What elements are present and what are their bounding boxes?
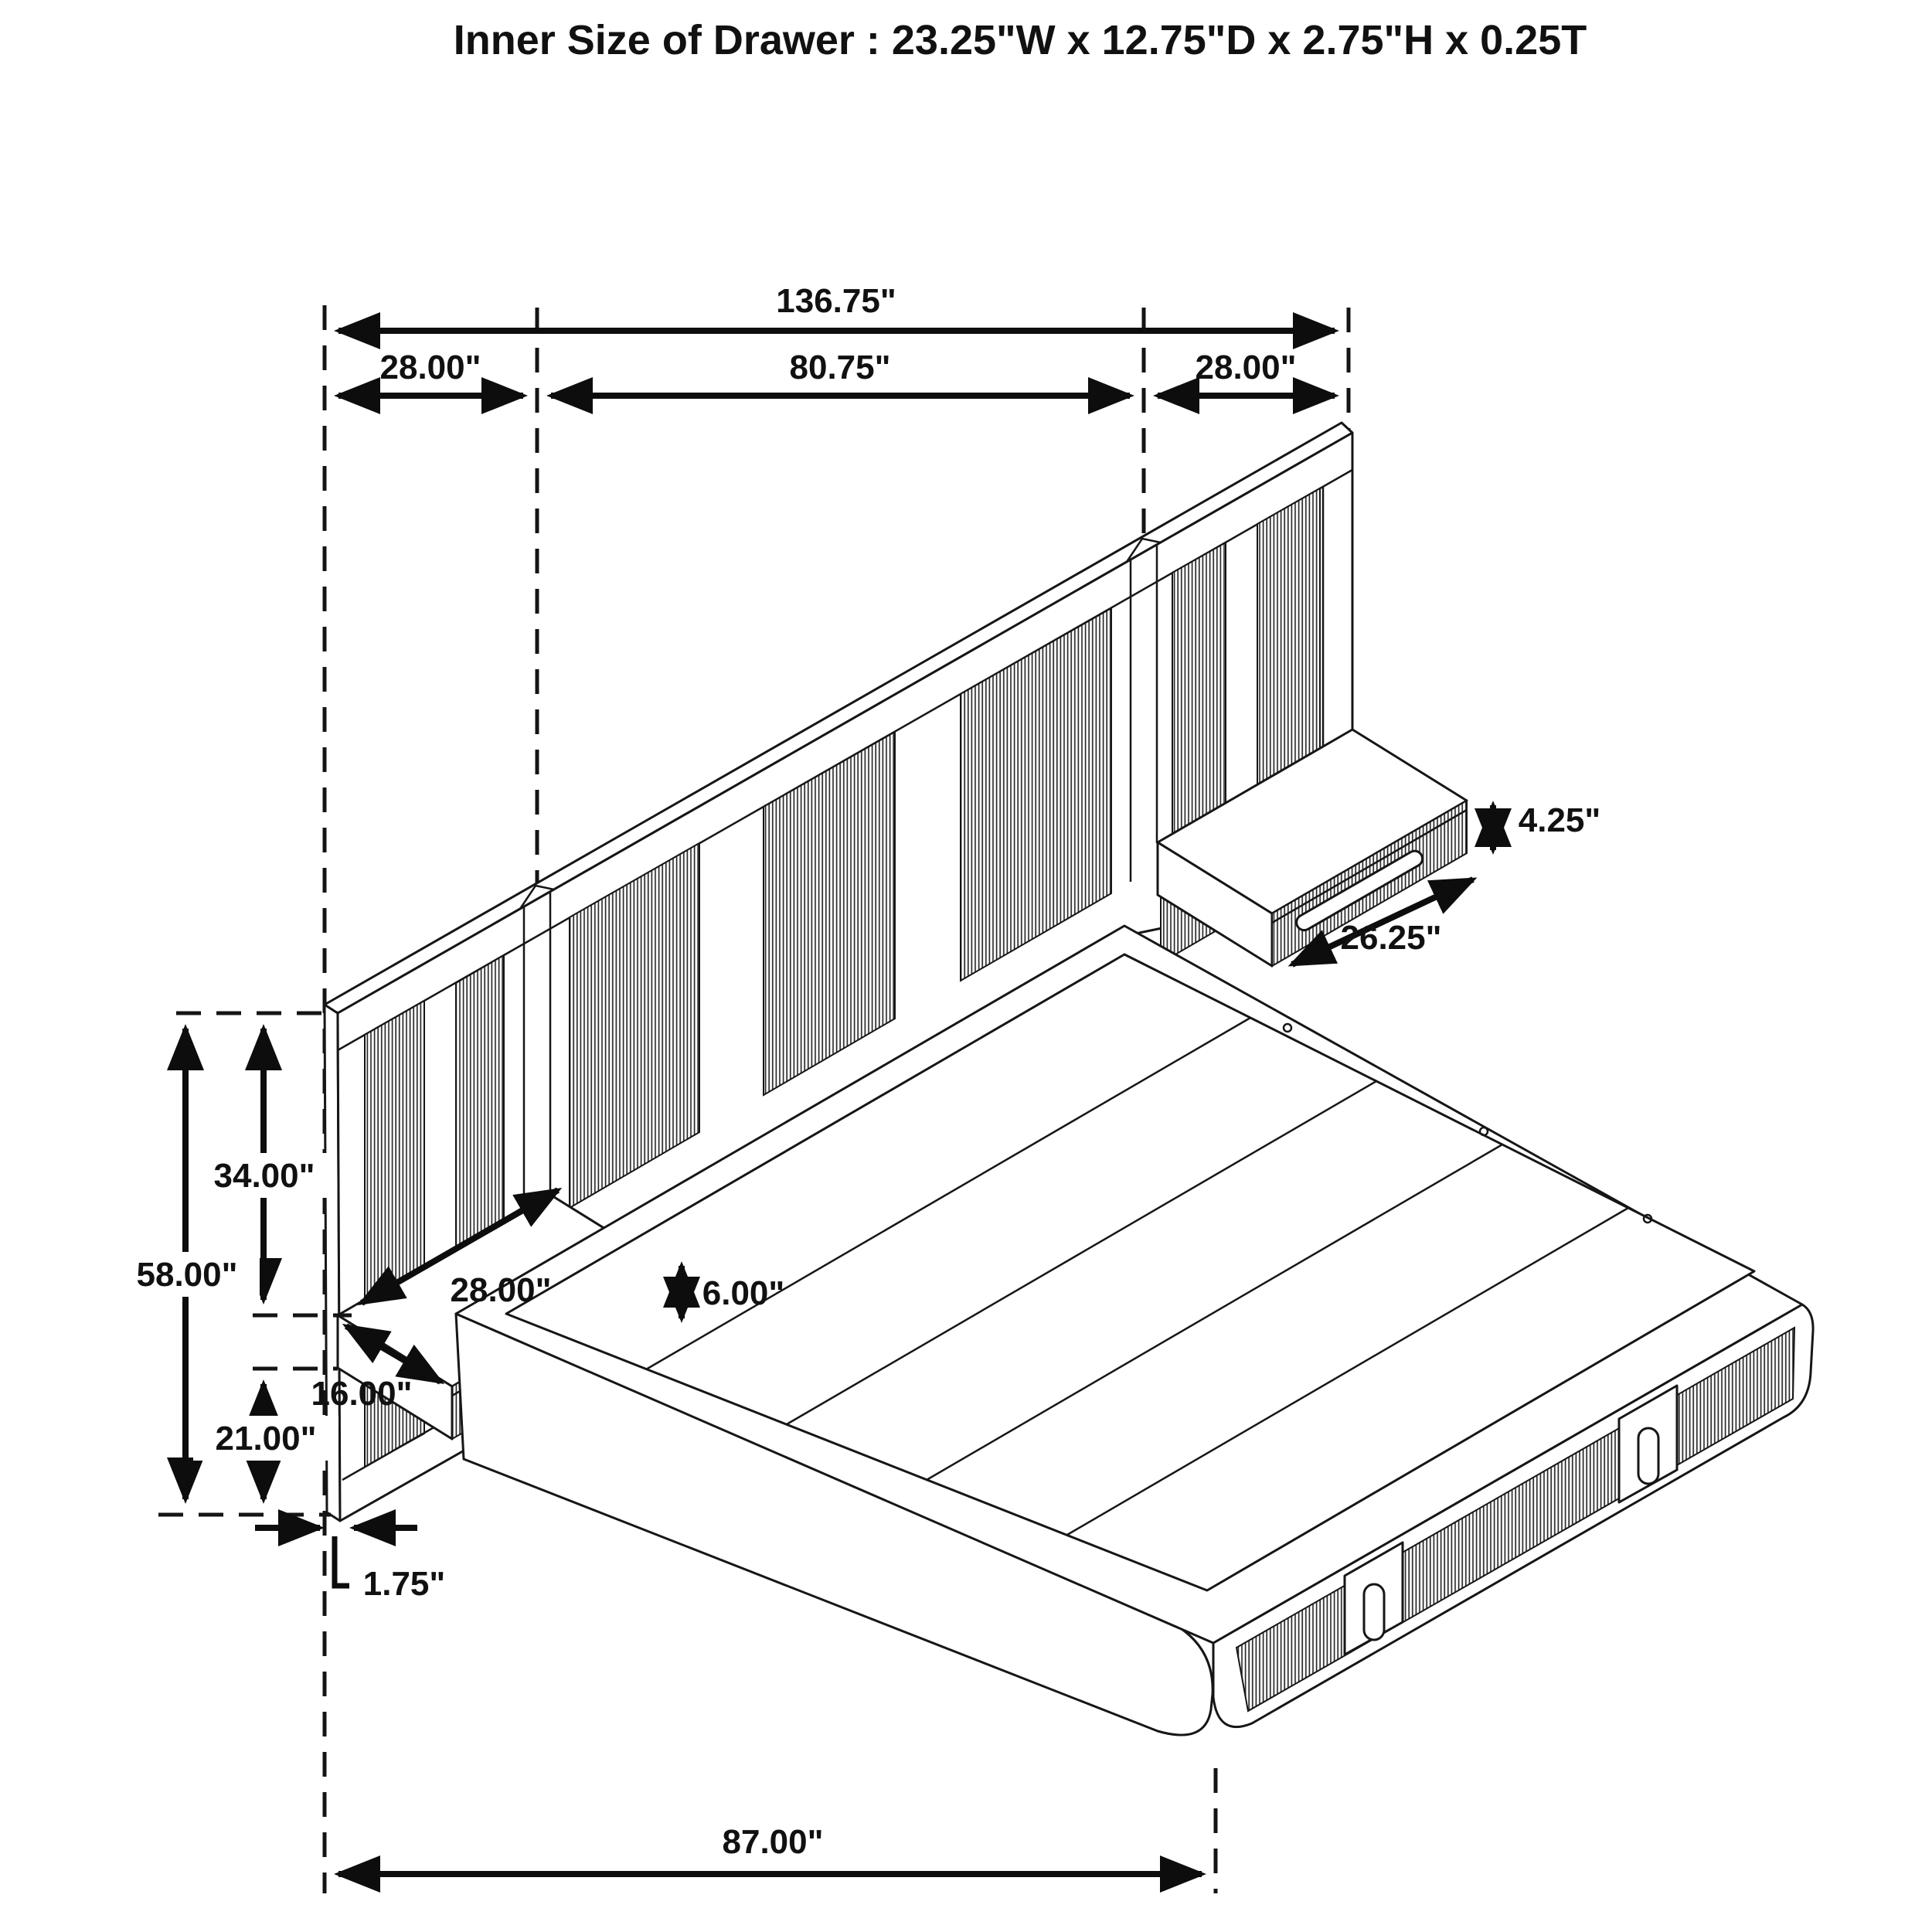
dim-upper-height: 34.00" [214,1157,315,1195]
dim-shelf-drawer-width: 26.25" [1341,919,1442,957]
thickness-leader [335,1536,349,1586]
dim-right-section: 28.00" [1196,349,1297,386]
dim-panel-thickness: 1.75" [363,1565,446,1603]
foot-drawer-pull-1 [1364,1584,1384,1640]
dim-lower-height: 21.00" [216,1420,317,1458]
dim-overall-width: 136.75" [776,282,896,320]
dim-center-section: 80.75" [790,349,891,386]
dim-nightstand-depth: 16.00" [311,1375,413,1413]
diagram-title: Inner Size of Drawer : 23.25"W x 12.75"D… [454,17,1587,63]
dim-nightstand-height: 6.00" [702,1274,785,1312]
dim-nightstand-width: 28.00" [451,1271,552,1309]
dim-bed-length: 87.00" [723,1823,824,1861]
furniture-dimension-diagram: Inner Size of Drawer : 23.25"W x 12.75"D… [0,0,1932,1932]
dim-left-section: 28.00" [380,349,481,386]
bed-wall-panel-isometric-drawing: Inner Size of Drawer : 23.25"W x 12.75"D… [0,0,1932,1932]
dim-total-height: 58.00" [137,1256,238,1294]
foot-drawer-pull-2 [1638,1428,1658,1484]
dim-shelf-height: 4.25" [1519,801,1601,839]
